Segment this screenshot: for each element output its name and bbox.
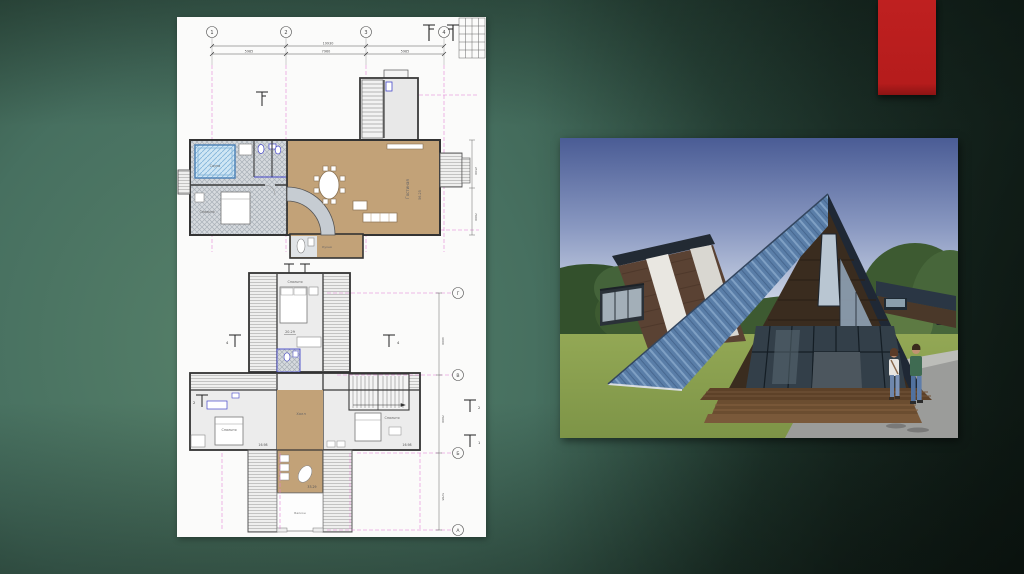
area-hall: 33.29	[307, 485, 316, 489]
dim-f1-a: 2500	[474, 167, 478, 175]
title-block-table	[459, 18, 485, 58]
svg-text:1: 1	[478, 441, 480, 445]
svg-text:2: 2	[478, 406, 480, 410]
area-bedroom-top: 20.29	[285, 330, 295, 334]
svg-text:19930: 19930	[323, 42, 334, 46]
red-accent-bar[interactable]	[878, 0, 936, 95]
label-bedroom-top: Спальня	[287, 280, 302, 284]
axis-grid-right	[453, 288, 464, 536]
dim-f2-b: 7900	[441, 415, 445, 423]
stairs-floor2	[349, 374, 409, 410]
svg-text:5985: 5985	[245, 50, 254, 54]
label-bedroom-right: Спальня	[384, 416, 399, 420]
house-render-drawing	[560, 138, 958, 438]
label-balcony: Балкон	[294, 511, 305, 515]
label-sauna: Сауна	[210, 164, 221, 168]
svg-text:Б: Б	[456, 451, 459, 457]
axis-grid-right-labels: Г В Б А	[456, 291, 460, 534]
svg-text:Г: Г	[457, 291, 460, 297]
label-bedroom-left: Спальня	[221, 428, 236, 432]
floor2-plan: Спальня 20.29	[190, 264, 480, 536]
floorplan-drawing: 1 2 3 4 19930 5985 7960 5985	[177, 17, 486, 537]
svg-text:В: В	[456, 373, 459, 379]
svg-text:2: 2	[284, 30, 287, 36]
svg-text:А: А	[456, 528, 460, 534]
area-living: 56.25	[418, 190, 422, 200]
dimension-labels-top: 19930 5985 7960 5985	[245, 42, 410, 54]
axis-grid-top	[207, 27, 450, 66]
label-kitchen: Кухня	[322, 245, 332, 249]
label-hall: Холл	[296, 412, 305, 416]
svg-text:4: 4	[442, 30, 445, 36]
dim-f2-c: 5785	[441, 493, 445, 501]
svg-text:3: 3	[364, 30, 367, 36]
dim-f2-a: 4000	[441, 337, 445, 345]
area-bedroom-right: 16.98	[402, 443, 411, 447]
svg-text:7960: 7960	[322, 50, 331, 54]
presentation-slide: 1 2 3 4 19930 5985 7960 5985	[0, 0, 1024, 574]
dimension-chain-floor1-right	[469, 140, 475, 235]
sauna-pool	[195, 145, 235, 178]
house-render-image[interactable]	[560, 138, 958, 438]
dim-f1-b: 7900	[474, 213, 478, 221]
svg-text:4: 4	[397, 341, 400, 345]
svg-text:2: 2	[193, 401, 195, 405]
floor1-plan: 2500 7900 Сауна Спальня Гостиная 56.25 К…	[178, 70, 478, 258]
label-living: Гостиная	[405, 179, 410, 199]
axis-grid-top-labels: 1 2 3 4	[210, 30, 445, 36]
svg-text:1: 1	[210, 30, 213, 36]
stairs-floor1	[362, 80, 383, 138]
area-bedroom-left: 16.98	[258, 443, 267, 447]
svg-text:4: 4	[226, 341, 229, 345]
label-bedroom-f1: Спальня	[199, 210, 214, 214]
floorplan-image[interactable]: 1 2 3 4 19930 5985 7960 5985	[177, 17, 486, 537]
svg-text:5985: 5985	[401, 50, 410, 54]
